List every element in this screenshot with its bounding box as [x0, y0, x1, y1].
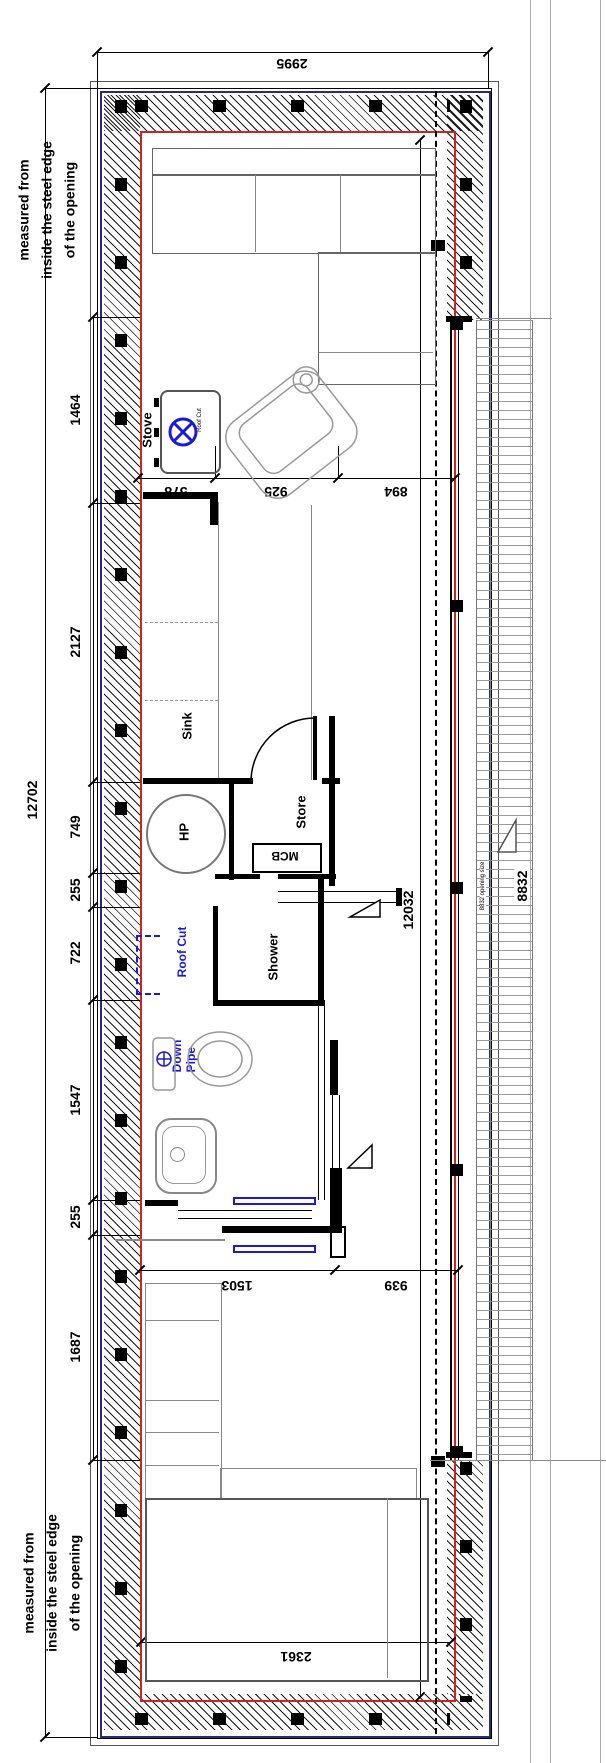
- down-pipe-symbol: [157, 1052, 171, 1066]
- deck-level-arrow: [498, 820, 516, 852]
- toilet: [153, 1032, 252, 1090]
- flue-roof-cut-symbol: [170, 419, 196, 445]
- door-direction-arrow: [350, 900, 380, 917]
- floor-plan-canvas: 8832 8832 opening size 2995 12702 1464 2…: [0, 0, 606, 1763]
- door-swing-arc: [251, 718, 315, 782]
- armchair: [217, 362, 366, 507]
- door-direction-arrow: [348, 1145, 372, 1168]
- plan-vector-overlay: [0, 0, 606, 1763]
